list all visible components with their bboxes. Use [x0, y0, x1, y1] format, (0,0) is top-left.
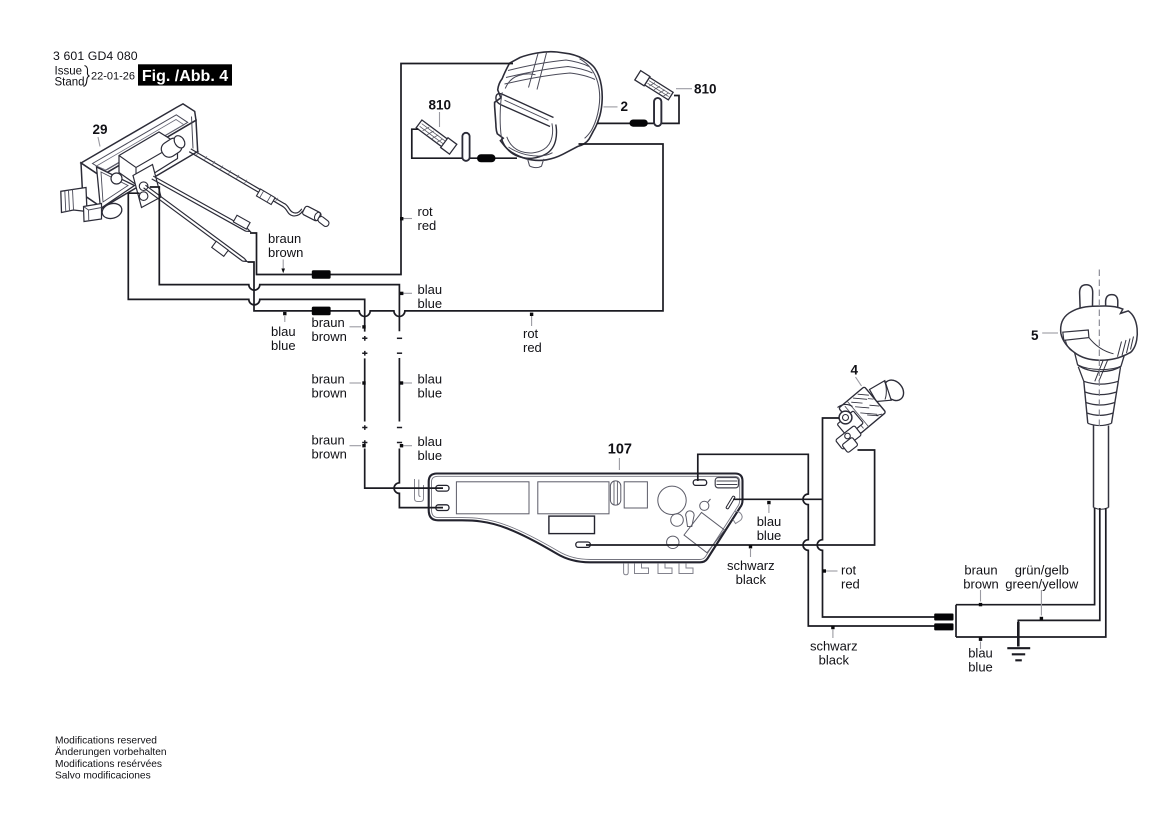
svg-text:107: 107 — [608, 442, 632, 458]
svg-text:5: 5 — [1031, 328, 1039, 343]
svg-text:brown: brown — [312, 329, 347, 344]
svg-text:2: 2 — [621, 99, 629, 114]
svg-text:blue: blue — [968, 660, 993, 675]
svg-text:Stand: Stand — [55, 77, 85, 89]
svg-text:Salvo modificaciones: Salvo modificaciones — [55, 771, 151, 782]
svg-text:brown: brown — [268, 245, 303, 260]
svg-text:blau: blau — [271, 324, 296, 339]
svg-text:black: black — [819, 653, 850, 668]
svg-text:blue: blue — [757, 528, 782, 543]
svg-text:810: 810 — [429, 98, 452, 113]
svg-text:blau: blau — [418, 372, 443, 387]
svg-text:Fig. /Abb. 4: Fig. /Abb. 4 — [142, 68, 228, 85]
svg-text:black: black — [736, 572, 767, 587]
svg-text:brown: brown — [312, 447, 347, 462]
svg-text:braun: braun — [964, 563, 997, 578]
svg-text:810: 810 — [694, 82, 717, 97]
svg-text:blau: blau — [968, 646, 993, 661]
svg-text:Modifications reserved: Modifications reserved — [55, 736, 157, 747]
svg-text:22-01-26: 22-01-26 — [91, 71, 135, 83]
svg-text:blue: blue — [271, 338, 296, 353]
svg-text:rot: rot — [841, 563, 857, 578]
svg-text:braun: braun — [312, 372, 345, 387]
svg-text:grün/gelb: grün/gelb — [1015, 563, 1069, 578]
svg-text:3 601 GD4 080: 3 601 GD4 080 — [53, 49, 138, 63]
svg-text:red: red — [841, 577, 860, 592]
svg-text:blau: blau — [757, 514, 782, 529]
svg-text:braun: braun — [268, 231, 301, 246]
svg-text:blue: blue — [418, 386, 443, 401]
svg-text:Änderungen vorbehalten: Änderungen vorbehalten — [55, 746, 167, 758]
svg-text:braun: braun — [312, 433, 345, 448]
svg-text:blue: blue — [418, 448, 443, 463]
svg-text:29: 29 — [93, 122, 108, 137]
svg-text:4: 4 — [851, 363, 859, 378]
svg-text:schwarz: schwarz — [727, 558, 775, 573]
svg-text:brown: brown — [963, 577, 998, 592]
svg-text:braun: braun — [312, 315, 345, 330]
svg-text:red: red — [418, 218, 437, 233]
svg-text:blue: blue — [418, 296, 443, 311]
svg-text:green/yellow: green/yellow — [1005, 577, 1079, 592]
svg-text:blau: blau — [418, 282, 443, 297]
svg-text:Modifications resérvées: Modifications resérvées — [55, 759, 162, 770]
svg-text:blau: blau — [418, 434, 443, 449]
svg-text:rot: rot — [523, 326, 539, 341]
svg-text:rot: rot — [418, 204, 434, 219]
svg-text:brown: brown — [312, 386, 347, 401]
svg-text:red: red — [523, 340, 542, 355]
svg-text:schwarz: schwarz — [810, 639, 858, 654]
